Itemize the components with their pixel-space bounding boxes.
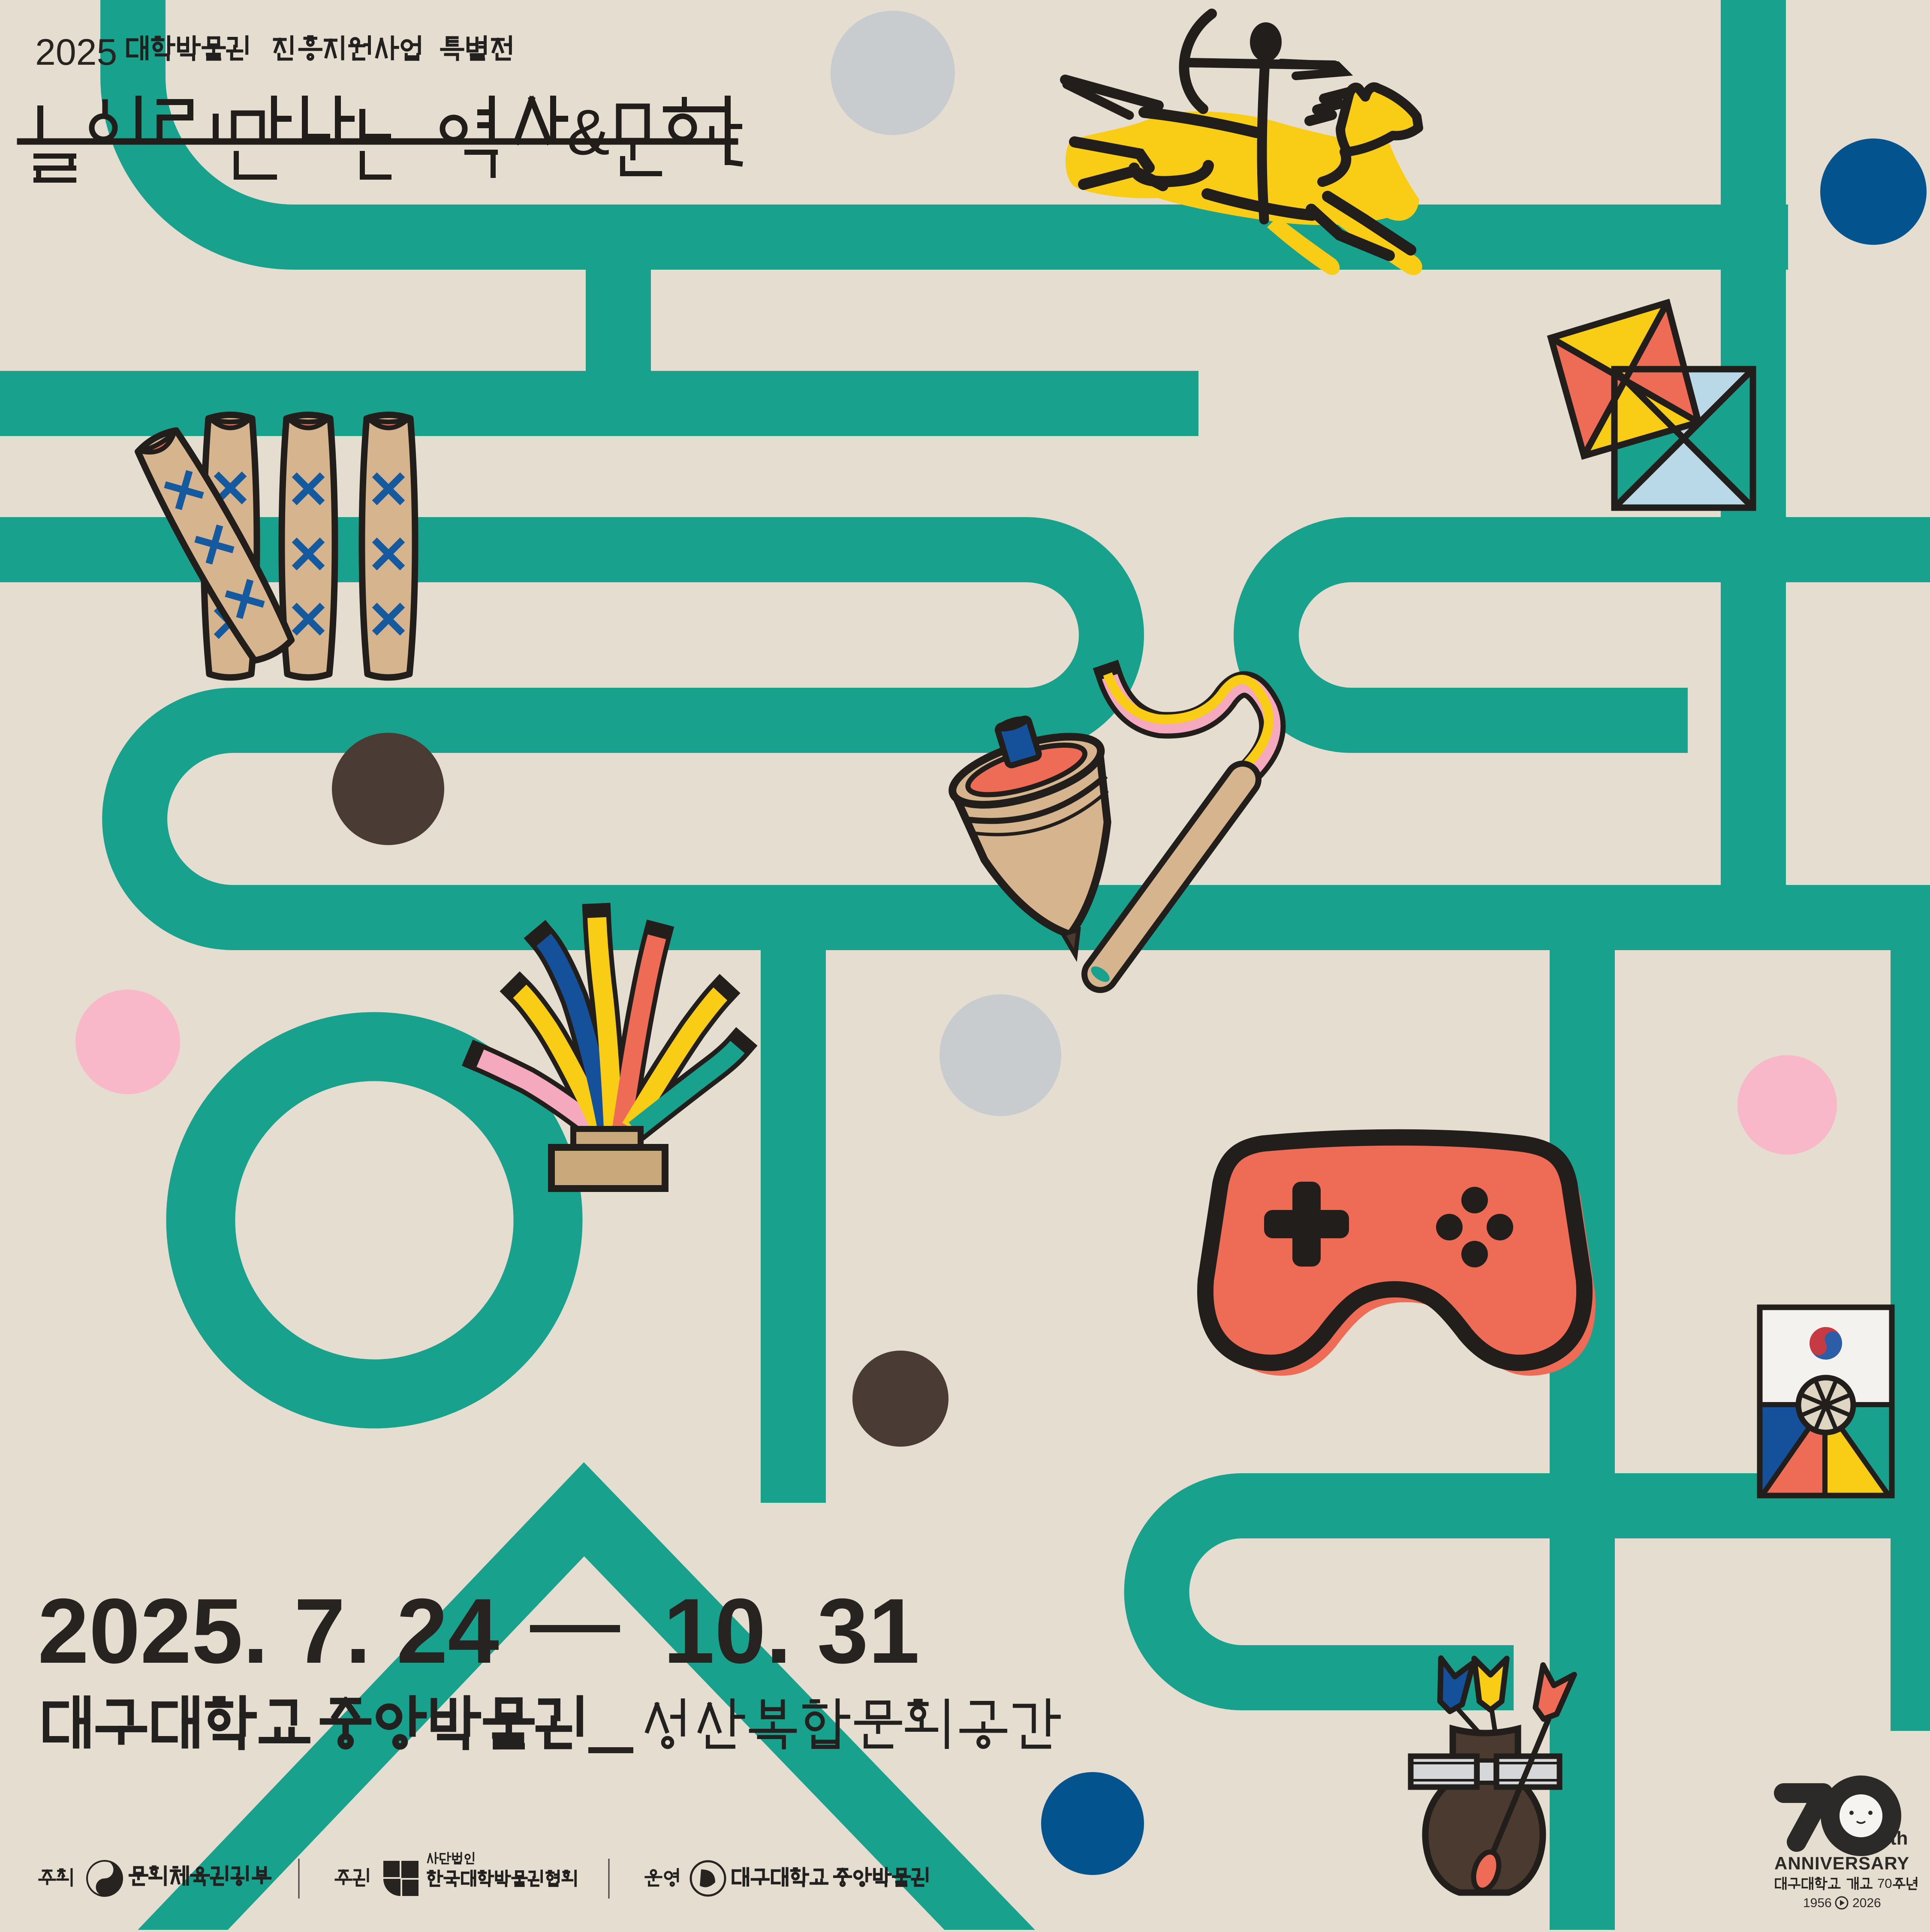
svg-text:th: th <box>1890 1828 1908 1849</box>
svg-text:ANNIVERSARY: ANNIVERSARY <box>1774 1853 1909 1873</box>
svg-text:2025. 7. 24: 2025. 7. 24 <box>38 1579 499 1682</box>
svg-text:2025: 2025 <box>35 32 117 73</box>
svg-text:70: 70 <box>1877 1876 1892 1891</box>
svg-text:&: & <box>567 96 610 168</box>
svg-text:1956: 1956 <box>1803 1896 1832 1910</box>
svg-text:2026: 2026 <box>1852 1896 1881 1910</box>
svg-text:10. 31: 10. 31 <box>663 1579 920 1682</box>
